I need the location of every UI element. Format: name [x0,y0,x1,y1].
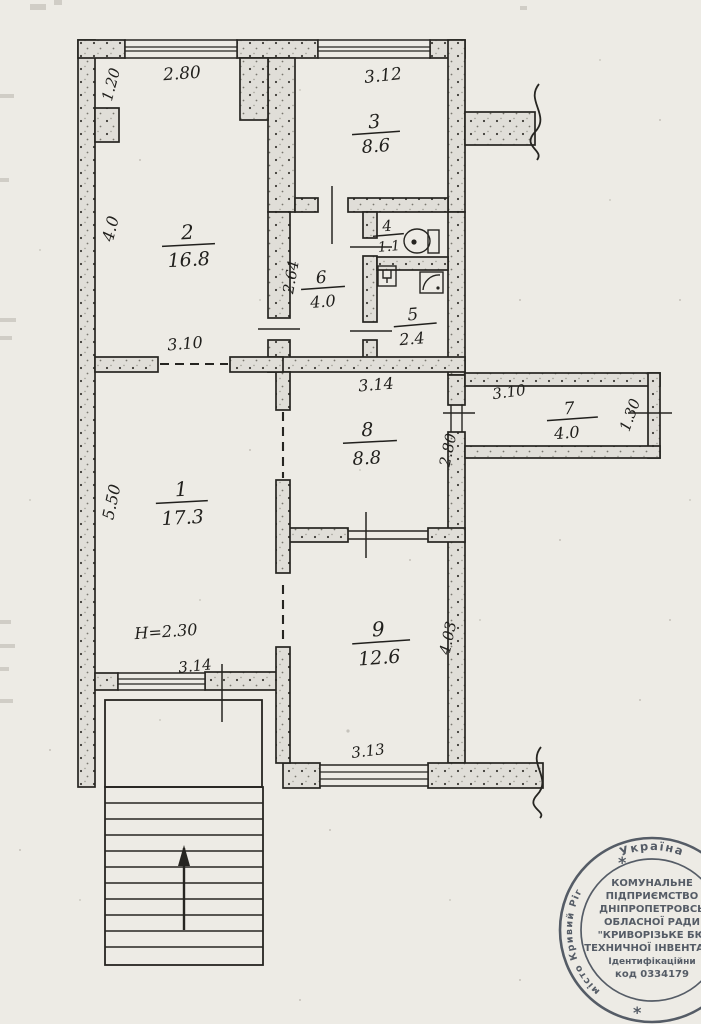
stamp-line-2: ПІДПРИЄМСТВО [606,891,699,902]
room-1-area: 17.3 [161,506,204,530]
dim-room3-top: 3.12 [363,64,403,88]
dim-room1-bottom: 3.14 [177,655,212,676]
room-7-area: 4.0 [553,422,581,443]
room-2-number: 2 [179,220,194,245]
floor-plan-drawing: 1 17.3 2 16.8 3 8.6 4 1.1 5 2.4 6 4.0 [0,0,701,1024]
room-9-area: 12.6 [357,646,401,671]
dim-room8-top: 3.14 [357,373,394,395]
room-1-number: 1 [174,477,188,502]
floor-plan-sheet: 1 17.3 2 16.8 3 8.6 4 1.1 5 2.4 6 4.0 [0,0,701,1024]
stamp-line-1: КОМУНАЛЬНЕ [611,878,693,889]
room-6-number: 6 [315,268,327,289]
room-2-area: 16.8 [167,248,210,272]
room-8-area: 8.8 [352,447,382,469]
stamp-line-4: ОБЛАСНОЇ РАДИ [604,914,700,928]
room-7-number: 7 [563,399,575,420]
room-9-number: 9 [371,617,386,642]
dim-room2-bottom: 3.10 [166,332,203,354]
stamp-line-7: Ідентифікаційни [608,956,695,967]
window-top-left [125,40,237,58]
room-5-number: 5 [407,305,420,326]
stamp-line-8: код 0334179 [615,969,689,980]
window-room9-bottom [320,765,428,786]
room-4-area: 1.1 [377,238,401,256]
room-5-area: 2.4 [397,328,425,349]
room-8-number: 8 [361,419,374,442]
dim-room2-top: 2.80 [161,63,201,86]
window-room1-bottom [118,673,205,690]
room-4-number: 4 [381,217,393,236]
stamp-star-bottom: * [633,1003,642,1022]
room-3-area: 8.6 [361,135,391,158]
stamp-line-6: ТЕХНИЧНОЇ ІНВЕНТАРИ [584,940,701,954]
stamp-line-5: "КРИВОРІЗЬКЕ БЮ [598,930,701,941]
room-6-area: 4.0 [309,291,337,312]
room-3-number: 3 [367,111,381,134]
stamp-line-3: ДНІПРОПЕТРОВСЬ [599,904,701,915]
stamp-star-top: * [618,853,627,872]
window-top-right [318,40,430,58]
